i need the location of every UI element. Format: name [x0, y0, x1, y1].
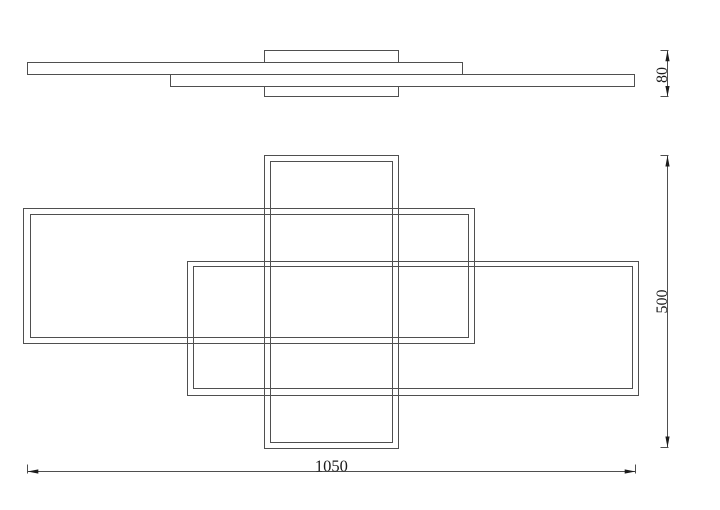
- svg-text:1050: 1050: [315, 456, 348, 475]
- svg-text:80: 80: [654, 67, 671, 83]
- svg-text:500: 500: [654, 290, 671, 314]
